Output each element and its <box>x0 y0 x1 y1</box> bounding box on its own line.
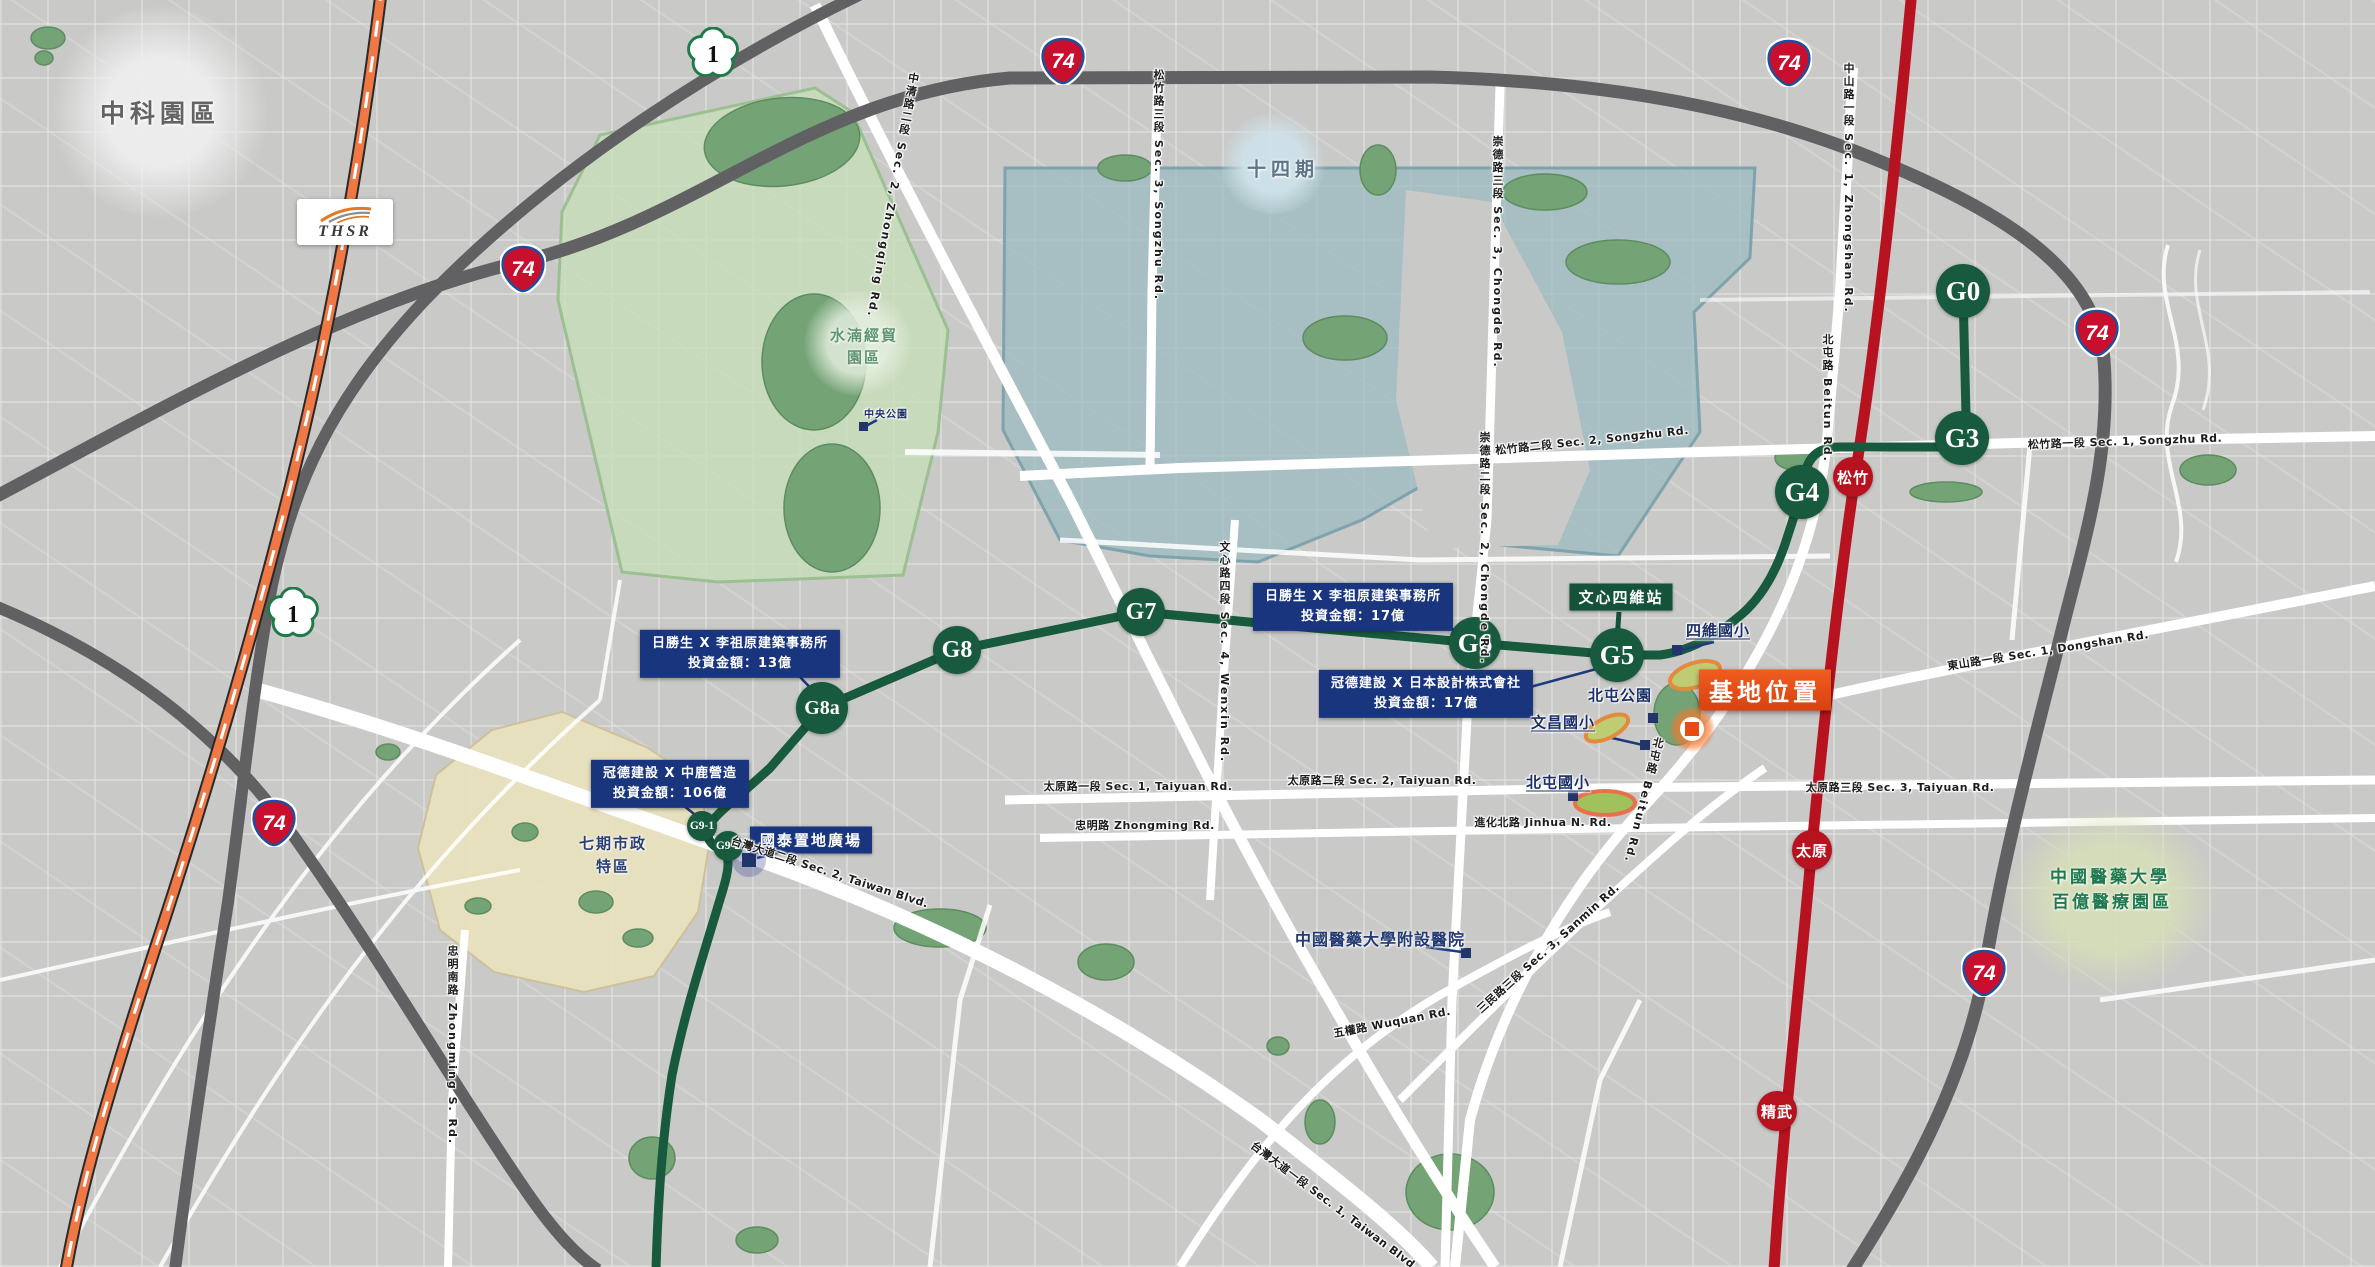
red-line-station-songzhu: 松竹 <box>1833 457 1873 497</box>
green-line-station-g7: G7 <box>1117 588 1165 636</box>
road-label-17: 五權路 Wuquan Rd. <box>1332 1003 1452 1041</box>
road-label-9: 文心路四段 Sec. 4, Wenxin Rd. <box>1216 541 1232 764</box>
road-label-0: 松竹路三段 Sec. 3, Songzhu Rd. <box>1150 69 1166 301</box>
cmu-medical-park-label-line1: 中國醫藥大學 <box>2050 866 2170 891</box>
site-marker-core <box>1685 722 1699 736</box>
red-line-station-jingwu: 精武 <box>1757 1091 1797 1131</box>
beitun-elementary-school-label: 北屯國小 <box>1526 772 1590 793</box>
road-label-3: 中清路二段 Sec. 2, Zhongqing Rd. <box>862 71 921 319</box>
investment-amount: 投資金額：17億 <box>1265 607 1441 627</box>
cmu-medical-park-label-line2: 百億醫療園區 <box>2052 891 2172 916</box>
investment-developer: 日勝生 X 李祖原建築事務所 <box>652 634 828 654</box>
phase7-area-label-line1: 七期市政 <box>579 833 647 854</box>
investment-developer: 冠德建設 X 中鹿營造 <box>603 764 737 784</box>
svg-text:1: 1 <box>287 602 299 628</box>
investment-amount: 投資金額：13億 <box>652 654 828 674</box>
site-marker-ring <box>1680 717 1704 741</box>
thsr-logo: THSR <box>297 199 393 245</box>
shuinan-area-label-line1: 水湳經貿 <box>830 325 898 346</box>
road-label-5: 北屯路 Beitun Rd. <box>1819 333 1835 463</box>
green-line-station-g8a: G8a <box>796 682 848 734</box>
road-label-8: 崇德路二段 Sec. 2, Chongde Rd. <box>1476 431 1492 664</box>
road-label-13: 太原路三段 Sec. 3, Taiyuan Rd. <box>1806 779 1995 795</box>
svg-text:74: 74 <box>1777 52 1801 75</box>
siwei-elementary-school-label: 四維國小 <box>1686 620 1750 641</box>
green-line-station-g8: G8 <box>933 626 981 674</box>
wenchang-elementary-school-label: 文昌國小 <box>1531 712 1595 733</box>
expressway-74-shield: 74 <box>1961 947 2007 997</box>
road-label-15: 進化北路 Jinhua N. Rd. <box>1474 814 1611 830</box>
thsr-label: THSR <box>318 224 372 240</box>
green-line-station-g4: G4 <box>1775 465 1829 519</box>
expressway-74-shield: 74 <box>251 797 297 847</box>
national-highway-1-shield: 1 <box>687 27 739 79</box>
thsr-swoosh-icon <box>317 205 373 223</box>
green-line-station-g5: G5 <box>1590 628 1644 682</box>
investment-developer: 冠德建設 X 日本設計株式會社 <box>1331 674 1521 694</box>
shuinan-area-label-line2: 園區 <box>847 347 881 368</box>
expressway-74-shield: 74 <box>2074 307 2120 357</box>
investment-amount: 投資金額：17億 <box>1331 694 1521 714</box>
svg-text:74: 74 <box>511 258 535 281</box>
investment-info-box-3: 冠德建設 X 中鹿營造投資金額：106億 <box>591 760 749 808</box>
road-label-6: 北屯路 Beitun Rd. <box>1620 735 1667 865</box>
site-location-marker <box>1669 706 1715 752</box>
road-label-14: 忠明路 Zhongming Rd. <box>1075 817 1215 833</box>
road-label-19: 台灣大道一段 Sec. 1, Taiwan Blvd. <box>1248 1137 1423 1267</box>
road-label-2: 松竹路一段 Sec. 1, Songzhu Rd. <box>2028 430 2223 453</box>
road-label-12: 太原路二段 Sec. 2, Taiyuan Rd. <box>1288 772 1477 788</box>
investment-developer: 日勝生 X 李祖原建築事務所 <box>1265 587 1441 607</box>
investment-info-box-0: 日勝生 X 李祖原建築事務所投資金額：13億 <box>640 630 840 678</box>
central-park-label: 中央公園 <box>864 406 908 421</box>
wenxin-siwei-station-box: 文心四維站 <box>1569 584 1672 611</box>
phase14-area-label: 十四期 <box>1247 155 1319 182</box>
map-markers-layer: 中科園區 十四期 水湳經貿 園區 七期市政 特區 中國醫藥大學附設醫院 中國醫藥… <box>0 0 2375 1267</box>
road-label-1: 松竹路二段 Sec. 2, Songzhu Rd. <box>1494 422 1689 458</box>
expressway-74-shield: 74 <box>1040 35 1086 85</box>
expressway-74-shield: 74 <box>500 243 546 293</box>
road-label-10: 東山路一段 Sec. 1, Dongshan Rd. <box>1946 626 2150 674</box>
investment-info-box-2: 冠德建設 X 日本設計株式會社投資金額：17億 <box>1319 670 1533 718</box>
road-label-7: 崇德路三段 Sec. 3, Chongde Rd. <box>1489 135 1505 368</box>
green-line-station-g0: G0 <box>1936 264 1990 318</box>
road-label-11: 太原路一段 Sec. 1, Taiyuan Rd. <box>1044 778 1233 794</box>
red-line-station-taiyuan: 太原 <box>1792 830 1832 870</box>
expressway-74-shield: 74 <box>1766 37 1812 87</box>
svg-text:74: 74 <box>1972 962 1996 985</box>
svg-text:1: 1 <box>707 42 719 68</box>
beitun-park-label: 北屯公園 <box>1588 685 1652 706</box>
phase7-area-label-line2: 特區 <box>596 856 630 877</box>
svg-text:74: 74 <box>1051 50 1075 73</box>
investment-amount: 投資金額：106億 <box>603 784 737 804</box>
svg-text:74: 74 <box>2085 322 2109 345</box>
green-line-station-g6: G6 <box>1449 617 1501 669</box>
svg-text:74: 74 <box>262 812 286 835</box>
zhongke-park-label: 中科園區 <box>100 94 220 130</box>
site-location-box: 基地位置 <box>1699 670 1831 711</box>
map-canvas: 中科園區 十四期 水湳經貿 園區 七期市政 特區 中國醫藥大學附設醫院 中國醫藥… <box>0 0 2375 1267</box>
cmu-hospital-label: 中國醫藥大學附設醫院 <box>1295 926 1465 950</box>
investment-info-box-1: 日勝生 X 李祖原建築事務所投資金額：17億 <box>1253 583 1453 631</box>
road-label-20: 忠明南路 Zhongming S. Rd. <box>444 945 460 1145</box>
national-highway-1-shield: 1 <box>267 587 319 639</box>
road-label-4: 中山路一段 Sec. 1, Zhongshan Rd. <box>1840 62 1856 313</box>
road-label-16: 三民路三段 Sec. 3, Sanmin Rd. <box>1473 879 1623 1016</box>
green-line-station-g3: G3 <box>1935 411 1989 465</box>
green-line-station-g9-1: G9-1 <box>687 811 717 841</box>
